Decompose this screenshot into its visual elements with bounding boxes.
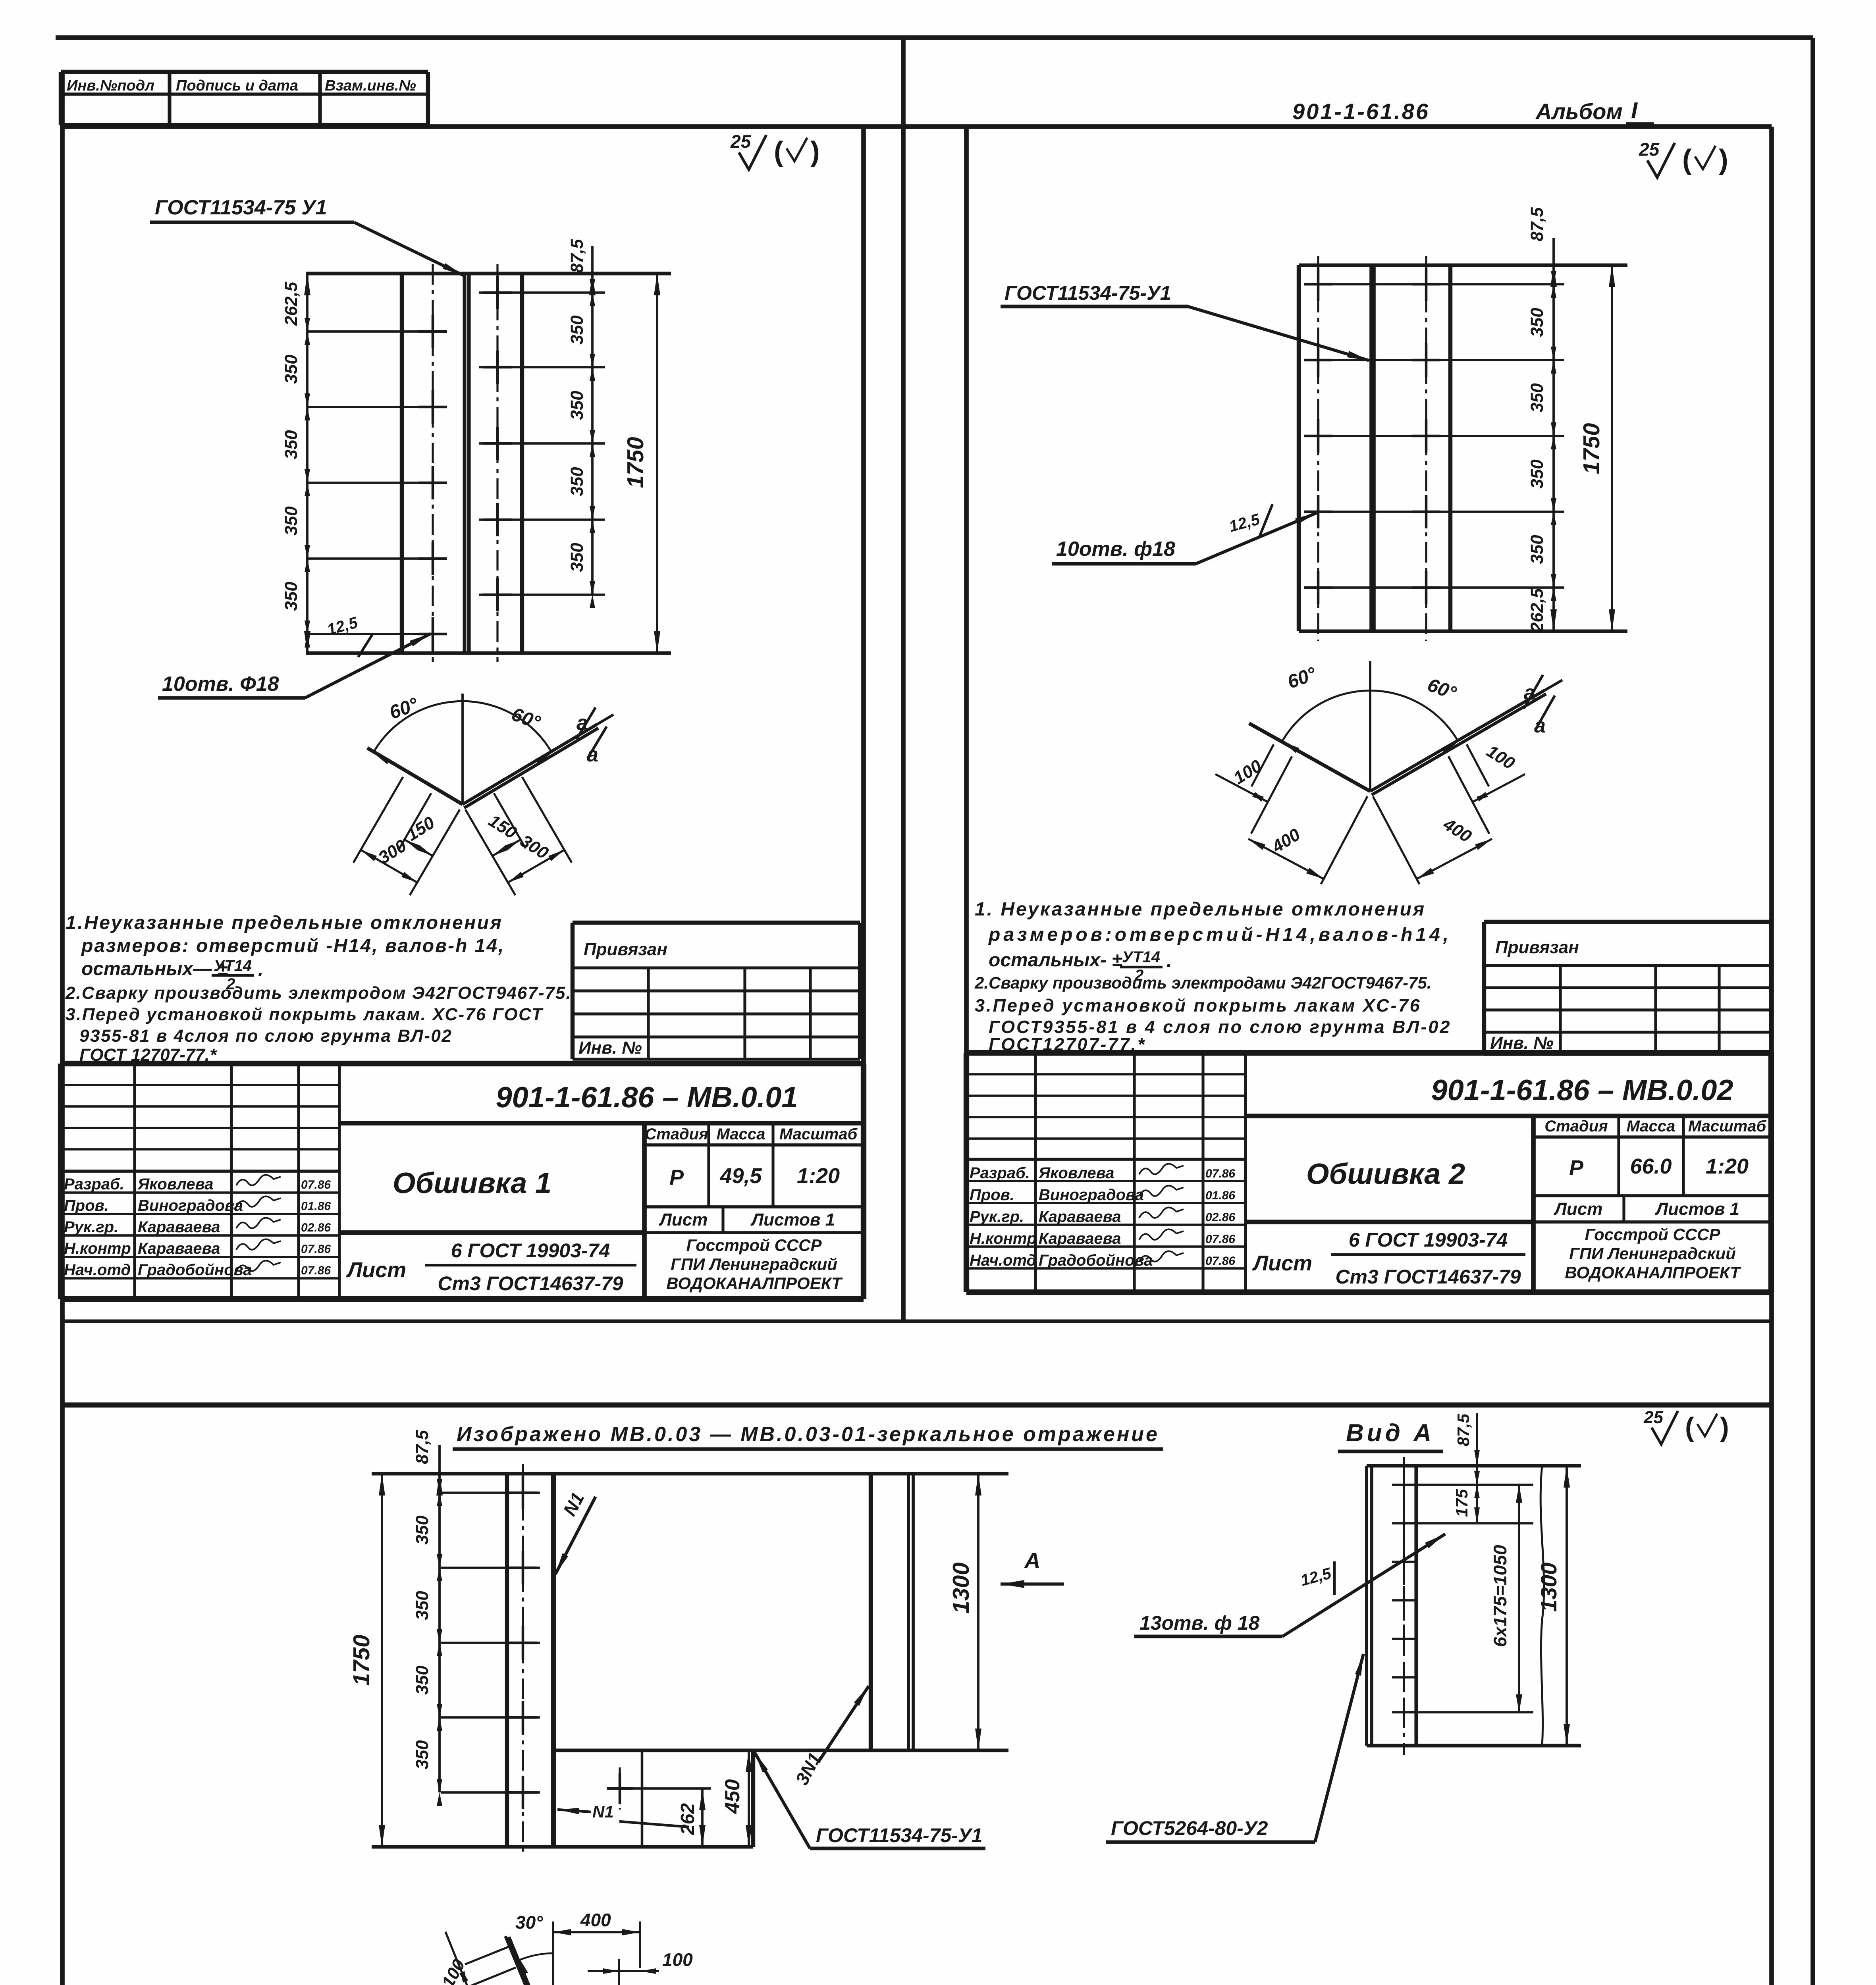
svg-text:30°: 30° — [515, 1912, 543, 1933]
svg-text:350: 350 — [281, 430, 301, 459]
svg-text:02.86: 02.86 — [1205, 1211, 1235, 1224]
svg-text:Разраб.: Разраб. — [64, 1176, 124, 1193]
svg-text:350: 350 — [567, 467, 587, 496]
svg-text:N1: N1 — [592, 1802, 614, 1821]
svg-text:ВОДОКАНАЛПРОЕКТ: ВОДОКАНАЛПРОЕКТ — [1565, 1263, 1741, 1282]
svg-text:а: а — [1534, 714, 1546, 737]
svg-text:Лист: Лист — [1554, 1199, 1603, 1219]
svg-text:ГОСТ11534-75 У1: ГОСТ11534-75 У1 — [155, 196, 327, 219]
svg-text:1. Неуказанные предельные от: 1. Неуказанные предельные отклонения — [975, 899, 1426, 920]
svg-text:1750: 1750 — [349, 1634, 374, 1686]
svg-text:Виноградова: Виноградова — [1039, 1186, 1144, 1204]
svg-text:ГПИ Ленинградский: ГПИ Ленинградский — [671, 1255, 837, 1274]
svg-text:Н.контр: Н.контр — [64, 1240, 131, 1257]
svg-text:100: 100 — [662, 1949, 693, 1970]
svg-text:350: 350 — [567, 315, 587, 345]
svg-text:350: 350 — [567, 391, 587, 420]
svg-text:901-1-61.86 – МВ.0.02: 901-1-61.86 – МВ.0.02 — [1431, 1073, 1733, 1106]
svg-text:3.Перед установкой покрыть л: 3.Перед установкой покрыть лакам ХС-76 — [975, 995, 1421, 1016]
svg-text:Караваева: Караваева — [1039, 1230, 1121, 1247]
svg-text:9355-81 в 4слоя по слою грун: 9355-81 в 4слоя по слою грунта ВЛ-02 — [79, 1026, 452, 1046]
svg-text:2.Сварку производить электрода: 2.Сварку производить электродами Э42ГОСТ… — [974, 973, 1431, 992]
svg-text:Листов 1: Листов 1 — [750, 1210, 835, 1230]
svg-text:350: 350 — [1527, 308, 1547, 337]
svg-text:2.Сварку производить электро: 2.Сварку производить электродом Э42ГОСТ9… — [65, 983, 572, 1003]
svg-text:Госстрой СССР: Госстрой СССР — [1585, 1225, 1720, 1244]
svg-text:350: 350 — [281, 355, 301, 384]
svg-text:Яковлева: Яковлева — [1038, 1164, 1114, 1182]
svg-text:ГОСТ5264-80-У2: ГОСТ5264-80-У2 — [1111, 1817, 1268, 1839]
svg-text:Пров.: Пров. — [64, 1197, 109, 1214]
svg-text:Нач.отд: Нач.отд — [64, 1261, 131, 1279]
svg-text:350: 350 — [281, 582, 301, 611]
svg-text:350: 350 — [567, 543, 587, 572]
svg-text:Ст3 ГОСТ14637-79: Ст3 ГОСТ14637-79 — [1335, 1266, 1521, 1288]
svg-text:6 ГОСТ 19903-74: 6 ГОСТ 19903-74 — [1349, 1229, 1508, 1251]
svg-text:ГОСТ11534-75-У1: ГОСТ11534-75-У1 — [816, 1824, 983, 1846]
svg-text:1300: 1300 — [1536, 1563, 1561, 1612]
svg-text:.: . — [258, 959, 263, 980]
svg-text:350: 350 — [413, 1665, 432, 1695]
svg-text:Изображено МВ.0.03 — МВ.0.03-: Изображено МВ.0.03 — МВ.0.03-01-зеркальн… — [457, 1423, 1159, 1446]
svg-text:Градобойнова: Градобойнова — [1039, 1252, 1153, 1269]
svg-text:175: 175 — [1452, 1489, 1471, 1517]
svg-text:Вид А: Вид А — [1346, 1419, 1434, 1447]
svg-text:Масштаб: Масштаб — [779, 1125, 858, 1143]
svg-text:Инв.№подл: Инв.№подл — [67, 77, 154, 94]
svg-text:1300: 1300 — [948, 1562, 974, 1613]
svg-text:262,5: 262,5 — [1527, 588, 1547, 632]
svg-text:.: . — [1166, 950, 1172, 971]
svg-text:350: 350 — [281, 506, 301, 536]
svg-text:07.86: 07.86 — [1205, 1255, 1235, 1268]
svg-text:Привязан: Привязан — [584, 940, 667, 959]
svg-text:Лист: Лист — [346, 1258, 406, 1282]
svg-text:87,5: 87,5 — [1527, 207, 1547, 241]
svg-text:07.86: 07.86 — [301, 1178, 331, 1191]
svg-text:1750: 1750 — [623, 437, 648, 488]
svg-text:262: 262 — [677, 1803, 698, 1835]
svg-text:Масштаб: Масштаб — [1688, 1118, 1767, 1135]
svg-text:87,5: 87,5 — [567, 239, 587, 273]
svg-text:Инв. №: Инв. № — [578, 1038, 642, 1058]
svg-text:Виноградова: Виноградова — [138, 1197, 243, 1214]
svg-text:1. Неуказанные предельные: 1. Неуказанные предельные отклонения раз… — [1064, 1983, 1711, 1985]
svg-text:Подпись и дата: Подпись и дата — [176, 77, 298, 94]
svg-text:25: 25 — [1643, 1408, 1663, 1427]
svg-text:350: 350 — [413, 1591, 432, 1620]
svg-text:07.86: 07.86 — [1205, 1167, 1235, 1180]
svg-text:25: 25 — [1639, 139, 1660, 160]
svg-text:Стадия: Стадия — [1544, 1118, 1608, 1135]
svg-text:350: 350 — [413, 1740, 432, 1769]
svg-text:Привязан: Привязан — [1495, 938, 1579, 957]
svg-text:1:20: 1:20 — [1706, 1154, 1749, 1178]
svg-text:87,5: 87,5 — [413, 1430, 432, 1464]
svg-text:Караваева: Караваева — [138, 1240, 220, 1257]
svg-text:87,5: 87,5 — [1454, 1413, 1473, 1446]
svg-text:02.86: 02.86 — [301, 1221, 331, 1234]
svg-text:07.86: 07.86 — [1205, 1233, 1235, 1246]
svg-text:10отв. ф18: 10отв. ф18 — [1056, 538, 1175, 561]
svg-text:Караваева: Караваева — [138, 1218, 220, 1236]
svg-text:(: ( — [1682, 144, 1692, 175]
svg-text:1:20: 1:20 — [797, 1164, 840, 1188]
svg-text:Разраб.: Разраб. — [970, 1164, 1030, 1182]
svg-text:остальных— ±: остальных— ± — [81, 958, 228, 979]
svg-text:Масса: Масса — [717, 1125, 765, 1143]
svg-text:01.86: 01.86 — [301, 1200, 331, 1213]
svg-text:(: ( — [774, 136, 783, 168]
svg-text:Ст3 ГОСТ14637-79: Ст3 ГОСТ14637-79 — [438, 1272, 623, 1295]
svg-text:Нач.отд: Нач.отд — [970, 1252, 1036, 1269]
svg-text:6х175=1050: 6х175=1050 — [1490, 1545, 1510, 1647]
svg-text:Лист: Лист — [659, 1210, 708, 1230]
svg-text:Яковлева: Яковлева — [137, 1176, 214, 1193]
svg-text:1750: 1750 — [1579, 423, 1604, 474]
svg-text:350: 350 — [413, 1515, 432, 1545]
svg-text:10отв. Ф18: 10отв. Ф18 — [162, 673, 279, 696]
svg-text:Стадия: Стадия — [645, 1125, 708, 1143]
svg-text:УТ14: УТ14 — [1122, 948, 1160, 966]
svg-text:901-1-61.86 – МВ.0.01: 901-1-61.86 – МВ.0.01 — [496, 1081, 798, 1114]
svg-text:Рук.гр.: Рук.гр. — [970, 1208, 1024, 1226]
svg-text:Обшивка 1: Обшивка 1 — [393, 1166, 551, 1199]
svg-text:350: 350 — [1527, 383, 1547, 412]
svg-text:Госстрой СССР: Госстрой СССР — [686, 1236, 822, 1255]
svg-text:ВОДОКАНАЛПРОЕКТ: ВОДОКАНАЛПРОЕКТ — [666, 1274, 843, 1293]
svg-text:(: ( — [1685, 1412, 1694, 1442]
svg-text:Лист: Лист — [1252, 1251, 1312, 1275]
svg-text:450: 450 — [721, 1779, 744, 1814]
svg-text:Листов 1: Листов 1 — [1655, 1199, 1739, 1219]
svg-text:): ) — [1719, 144, 1728, 175]
svg-text:Альбом: Альбом — [1535, 99, 1623, 124]
svg-text:Пров.: Пров. — [970, 1186, 1014, 1204]
svg-text:Инв. №: Инв. № — [1490, 1033, 1554, 1053]
svg-text:ГПИ Ленинградский: ГПИ Ленинградский — [1569, 1244, 1736, 1263]
svg-text:Обшивка 2: Обшивка 2 — [1306, 1157, 1465, 1190]
svg-text:Рук.гр.: Рук.гр. — [64, 1218, 118, 1236]
svg-text:49,5: 49,5 — [719, 1164, 762, 1188]
svg-text:07.86: 07.86 — [301, 1264, 331, 1277]
svg-text:): ) — [1720, 1412, 1729, 1442]
svg-text:Р: Р — [669, 1166, 684, 1189]
svg-text:262,5: 262,5 — [281, 281, 301, 326]
svg-text:А: А — [1024, 1548, 1040, 1573]
svg-text:размеров:отверстий-Н14,валов-h: размеров:отверстий-Н14,валов-h14, — [988, 924, 1452, 945]
svg-text:размеров: отверстий -Н14, вало: размеров: отверстий -Н14, валов-h 14, — [81, 935, 505, 956]
svg-text:): ) — [810, 136, 820, 168]
svg-text:ГОСТ11534-75-У1: ГОСТ11534-75-У1 — [1005, 282, 1171, 304]
svg-text:I: I — [1631, 98, 1638, 123]
svg-text:400: 400 — [580, 1910, 611, 1930]
svg-text:07.86: 07.86 — [301, 1243, 331, 1256]
svg-text:01.86: 01.86 — [1205, 1189, 1235, 1202]
svg-text:13отв. ф 18: 13отв. ф 18 — [1139, 1612, 1260, 1634]
svg-text:Н.контр: Н.контр — [970, 1230, 1037, 1247]
svg-text:Взам.инв.№: Взам.инв.№ — [325, 77, 416, 94]
svg-text:Масса: Масса — [1627, 1118, 1675, 1135]
svg-text:350: 350 — [1527, 459, 1547, 489]
svg-text:остальных- ±: остальных- ± — [989, 950, 1122, 971]
svg-text:25: 25 — [730, 131, 752, 152]
svg-text:Караваева: Караваева — [1039, 1208, 1121, 1226]
svg-text:6 ГОСТ 19903-74: 6 ГОСТ 19903-74 — [451, 1239, 610, 1262]
svg-text:УТ14: УТ14 — [214, 957, 252, 975]
svg-text:350: 350 — [1527, 535, 1547, 564]
svg-text:Р: Р — [1569, 1156, 1584, 1180]
svg-text:Градобойнова: Градобойнова — [138, 1261, 252, 1279]
svg-text:3.Перед установкой покрыть лак: 3.Перед установкой покрыть лакам. ХС-76 … — [66, 1005, 544, 1024]
svg-text:66.0: 66.0 — [1630, 1154, 1672, 1178]
svg-text:1.Неуказанные предельные отк: 1.Неуказанные предельные отклонения — [66, 912, 503, 933]
svg-text:901-1-61.86: 901-1-61.86 — [1292, 99, 1430, 124]
